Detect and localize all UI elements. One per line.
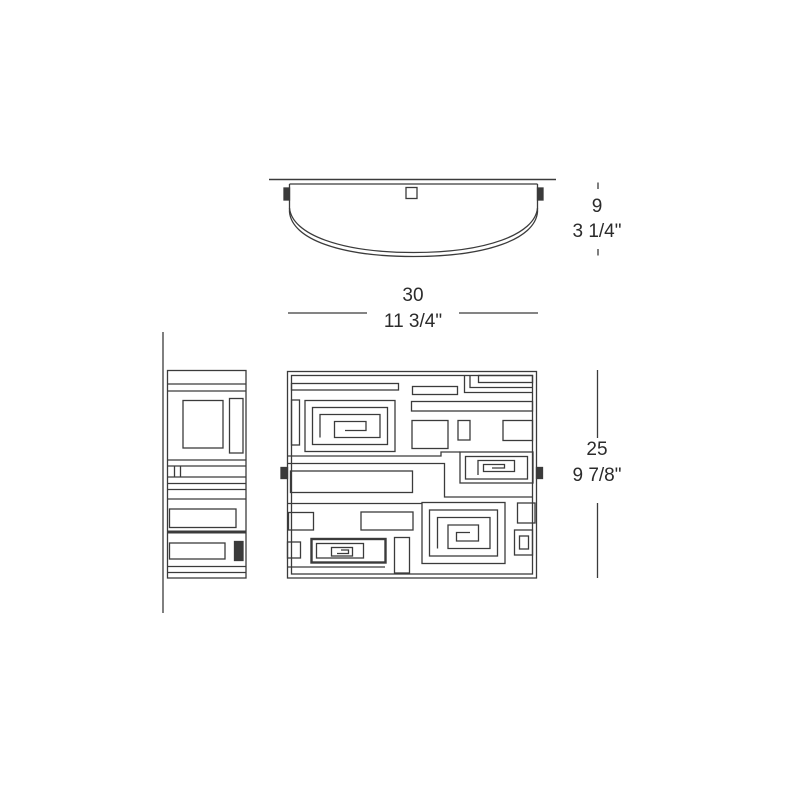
front-right-mount-tab <box>537 468 543 479</box>
height-metric-value: 25 <box>572 437 621 463</box>
pattern-hooks-top-right <box>412 376 533 412</box>
side-pattern-rect-bottom <box>170 543 226 559</box>
pattern-bottom-left <box>288 512 414 573</box>
side-view-drawing <box>163 332 246 613</box>
side-pattern-rect-lower <box>170 509 237 528</box>
side-pattern-stripes-bottom <box>168 567 247 573</box>
dimensional-drawing <box>0 0 800 800</box>
greek-key-spiral-bottom-right <box>422 503 535 564</box>
dimension-lines <box>288 183 598 579</box>
diffuser-inner-curve <box>290 208 538 253</box>
mounting-square <box>406 188 417 199</box>
greek-key-spiral-mid-right <box>460 452 533 483</box>
diffuser-outer-curve <box>290 212 538 257</box>
left-mount-tab <box>284 188 290 200</box>
right-mount-tab <box>538 188 544 200</box>
width-metric-value: 30 <box>384 283 442 309</box>
pattern-band-top-left <box>292 384 399 391</box>
front-view-drawing <box>281 372 543 579</box>
side-pattern-rect-upper <box>183 401 223 449</box>
top-view-drawing <box>269 180 556 257</box>
dimensional-drawing-page: 9 3 1/4" 30 11 3/4" 25 9 7/8" <box>0 0 800 800</box>
pattern-meander-band <box>288 452 533 504</box>
side-pattern-rect-upper-right <box>230 399 244 454</box>
height-dimension-label: 25 9 7/8" <box>572 437 621 489</box>
height-imperial-value: 9 7/8" <box>572 463 621 489</box>
width-imperial-value: 11 3/4" <box>384 309 442 335</box>
side-pattern-dark-tab <box>235 542 244 561</box>
front-left-mount-tab <box>281 468 288 479</box>
depth-dimension-label: 9 3 1/4" <box>572 194 621 244</box>
pattern-rect-left-narrow <box>292 400 300 445</box>
side-pattern-stripes-top <box>168 384 247 391</box>
greek-key-spiral-top-left <box>305 401 395 452</box>
side-pattern-stripes-middle <box>168 460 247 499</box>
depth-imperial-value: 3 1/4" <box>572 219 621 244</box>
depth-metric-value: 9 <box>572 194 621 219</box>
width-dimension-label: 30 11 3/4" <box>384 283 442 335</box>
pattern-squares-middle <box>412 421 533 449</box>
